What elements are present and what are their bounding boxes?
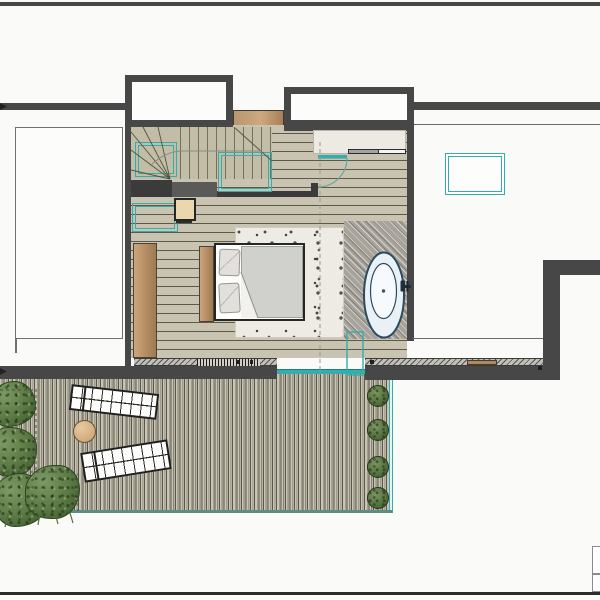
closet-sliding-door-1: [348, 149, 381, 155]
legend-box: [592, 546, 600, 592]
skylight-over-flight: [218, 152, 272, 192]
bottom-boundary-line: [0, 592, 600, 595]
bed-headboard: [199, 246, 214, 322]
bedroom-north-wall: [125, 122, 233, 127]
planter-pot-1: [367, 385, 389, 407]
floor-grille: [197, 359, 260, 366]
floor-plan-canvas: [0, 0, 600, 600]
right-wing-wall-vertical: [543, 260, 560, 380]
lower-roof-edge-tail: [15, 339, 17, 353]
bedside-stool: [174, 198, 196, 221]
bathroom-tile-floor: [344, 221, 407, 339]
bedroom-west-wall: [125, 125, 131, 366]
right-wing-wall-horizontal: [560, 260, 600, 275]
terrace-parapet-wall-right: [365, 366, 560, 380]
stair-guard-wall-a: [131, 180, 172, 197]
stair-guard-wall-b: [172, 182, 217, 197]
round-side-table: [73, 420, 96, 443]
chair-headrest-divider: [93, 452, 99, 480]
floor-void-outline: [132, 203, 178, 232]
skylight-over-winder: [135, 142, 177, 177]
top-boundary-wall: [0, 2, 600, 6]
right-roof-line: [413, 338, 543, 339]
cut-line-arrows: [0, 103, 7, 375]
pillow-top: [219, 249, 241, 277]
lower-roof-outline: [15, 127, 123, 339]
pillow-bottom: [218, 282, 241, 313]
bush-4: [25, 465, 80, 519]
right-roof-edge-line: [408, 124, 600, 125]
planter-pot-4: [367, 487, 389, 509]
planter-pot-3: [367, 456, 389, 478]
stool-shadow-edge: [176, 221, 192, 224]
roof-skylight-right: [445, 153, 505, 195]
terrace-parapet-wall-left: [0, 366, 277, 379]
glass-wall-section: [277, 369, 365, 374]
right-exterior-wall: [413, 102, 600, 110]
dormer-right: [284, 87, 414, 127]
planter-pot-2: [367, 419, 389, 441]
stair-guard-hook: [311, 183, 318, 197]
closet-sliding-door-2: [378, 149, 406, 154]
bedroom-east-wall: [407, 87, 414, 341]
chair-headrest-divider: [82, 387, 87, 411]
legend-box-divider: [593, 573, 600, 575]
wardrobe-panel: [133, 243, 157, 358]
threshold-wood-insert: [467, 360, 497, 365]
threshold-hatch-right: [365, 358, 543, 366]
dormer-left: [125, 75, 233, 127]
deck-east-glass-edge: [389, 374, 394, 513]
left-exterior-wall: [0, 103, 128, 110]
